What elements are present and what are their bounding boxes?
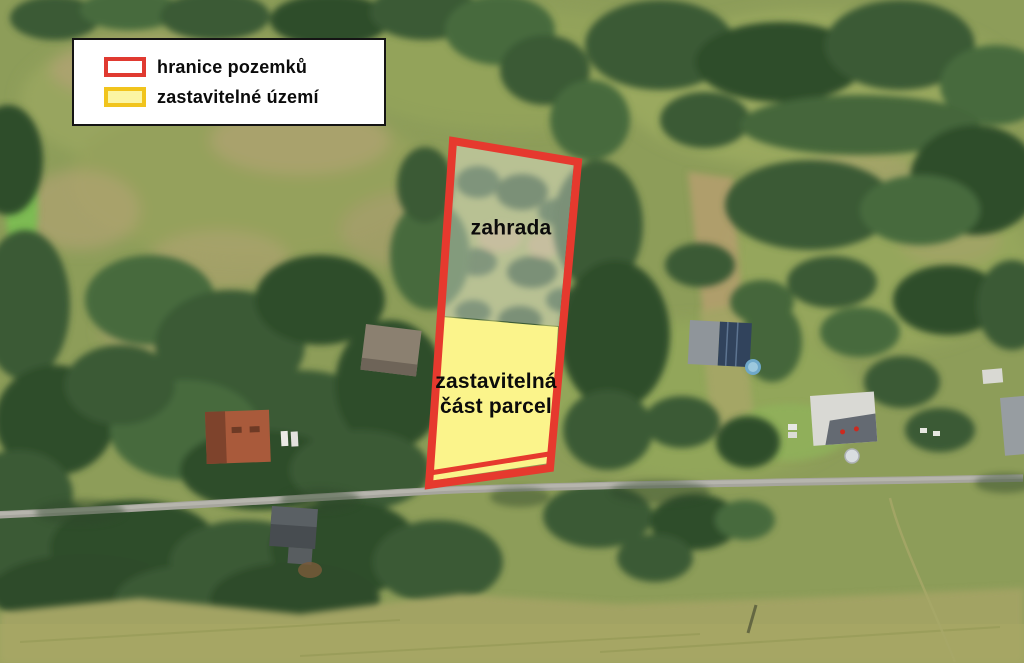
buildable-area-swatch-icon (104, 87, 146, 107)
legend-row-parcel-boundary: hranice pozemků (104, 57, 384, 78)
legend-row-buildable-area: zastavitelné území (104, 87, 384, 108)
parcel-overlay (429, 141, 578, 485)
legend-label-buildable-area: zastavitelné území (157, 87, 319, 108)
buildable-area-label-line1: zastavitelná (435, 369, 556, 394)
legend-label-parcel-boundary: hranice pozemků (157, 57, 307, 78)
zahrada-label: zahrada (471, 216, 552, 241)
buildable-area-label-line2: část parcel (435, 394, 556, 419)
aerial-map-stage: zahrada zastavitelná část parcel hranice… (0, 0, 1024, 663)
parcel-boundary-swatch-icon (104, 57, 146, 77)
buildable-area-label: zastavitelná část parcel (435, 369, 556, 419)
legend: hranice pozemků zastavitelné území (72, 38, 386, 126)
